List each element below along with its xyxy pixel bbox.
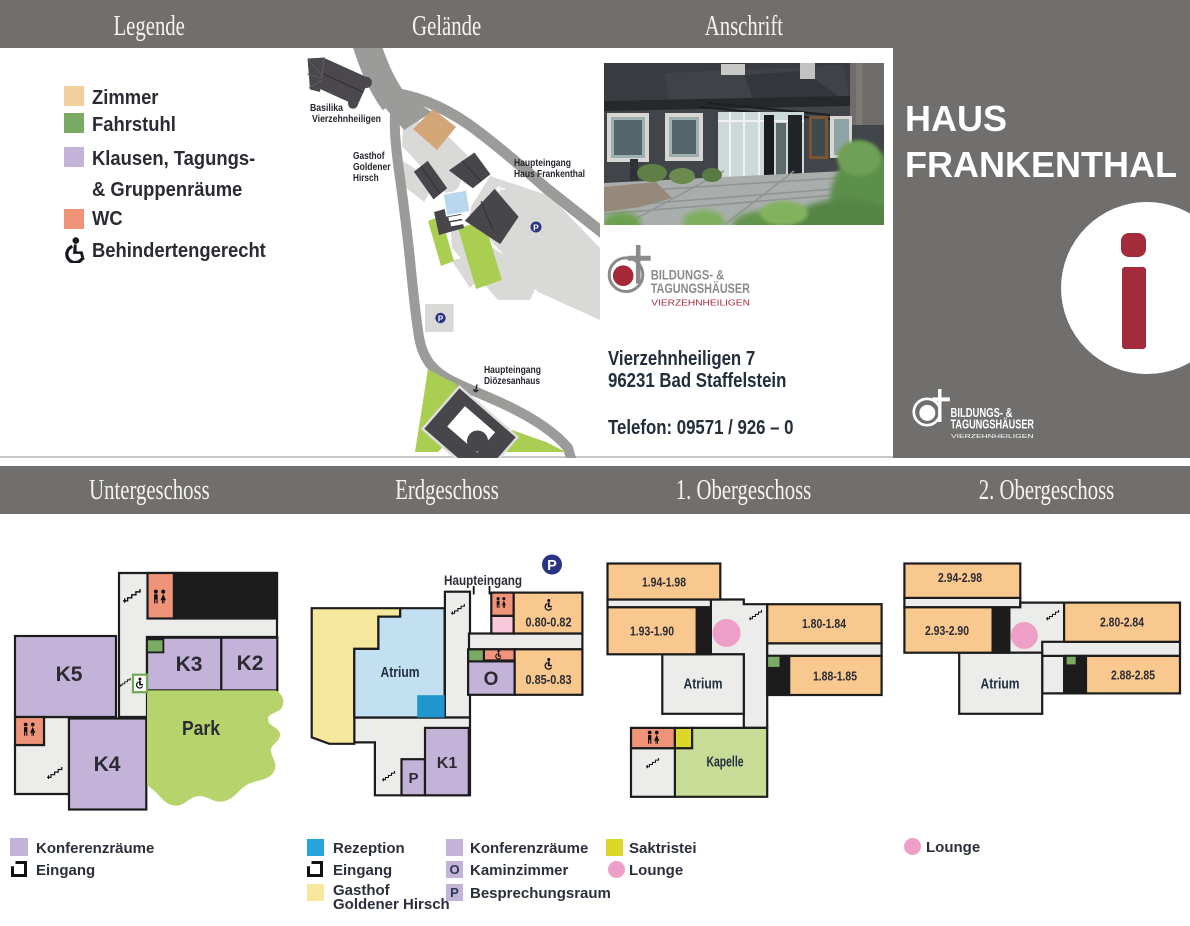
svg-text:K3: K3 xyxy=(176,653,203,676)
svg-text:Atrium: Atrium xyxy=(381,665,420,681)
svg-text:TAGUNGSHÄUSER: TAGUNGSHÄUSER xyxy=(651,280,750,296)
svg-text:Atrium: Atrium xyxy=(684,677,723,693)
svg-text:K1: K1 xyxy=(437,755,458,772)
svg-text:Kapelle: Kapelle xyxy=(707,755,744,771)
svg-text:2.94-2.98: 2.94-2.98 xyxy=(938,570,982,585)
svg-text:Vierzehnheiligen: Vierzehnheiligen xyxy=(312,113,381,125)
svg-text:P: P xyxy=(533,223,539,233)
svg-text:1.93-1.90: 1.93-1.90 xyxy=(630,624,674,639)
svg-text:0.80-0.82: 0.80-0.82 xyxy=(526,615,572,630)
svg-text:1.94-1.98: 1.94-1.98 xyxy=(642,575,686,590)
svg-text:Haus Frankenthal: Haus Frankenthal xyxy=(514,168,585,180)
svg-text:2.93-2.90: 2.93-2.90 xyxy=(925,623,969,638)
svg-text:VIERZEHNHEILIGEN: VIERZEHNHEILIGEN xyxy=(651,299,750,308)
svg-text:TAGUNGSHÄUSER: TAGUNGSHÄUSER xyxy=(951,417,1035,432)
svg-text:2.88-2.85: 2.88-2.85 xyxy=(1111,668,1155,683)
svg-text:K5: K5 xyxy=(56,663,83,686)
svg-text:Park: Park xyxy=(182,718,221,740)
svg-text:Atrium: Atrium xyxy=(981,677,1020,693)
svg-text:K2: K2 xyxy=(237,652,264,675)
svg-text:P: P xyxy=(547,558,557,574)
svg-text:Haupteingang: Haupteingang xyxy=(444,573,522,588)
svg-text:2.80-2.84: 2.80-2.84 xyxy=(1100,615,1145,630)
svg-text:Diözesanhaus: Diözesanhaus xyxy=(484,375,540,387)
svg-text:1.80-1.84: 1.80-1.84 xyxy=(802,616,847,631)
svg-text:VIERZEHNHEILIGEN: VIERZEHNHEILIGEN xyxy=(951,434,1034,440)
svg-text:K4: K4 xyxy=(94,753,121,776)
svg-text:Hirsch: Hirsch xyxy=(353,172,379,184)
svg-text:P: P xyxy=(408,770,418,787)
svg-text:P: P xyxy=(438,315,444,324)
svg-text:1.88-1.85: 1.88-1.85 xyxy=(813,669,857,684)
svg-text:0.85-0.83: 0.85-0.83 xyxy=(526,672,572,687)
svg-text:O: O xyxy=(484,669,499,690)
